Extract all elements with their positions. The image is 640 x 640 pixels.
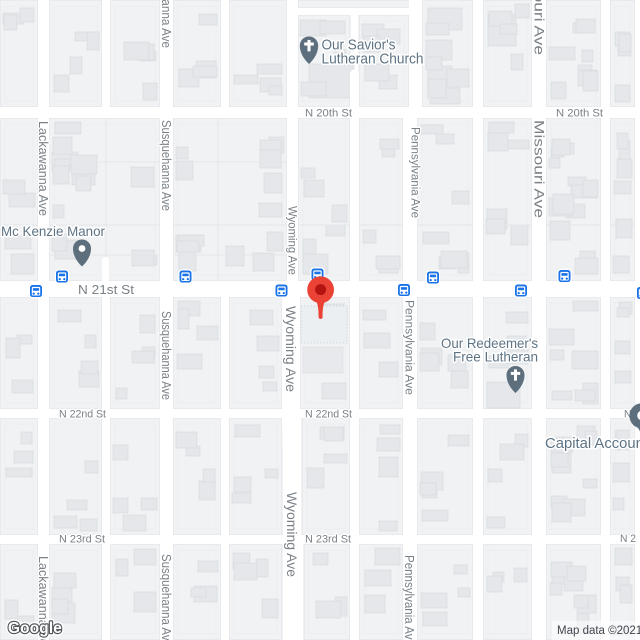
svg-text:N 21st St: N 21st St [78, 282, 134, 297]
svg-text:Missouri Ave: Missouri Ave [531, 120, 546, 218]
svg-text:N 20th St: N 20th St [305, 108, 352, 120]
svg-text:Wyoming Ave: Wyoming Ave [283, 306, 298, 392]
svg-text:Free Lutheran: Free Lutheran [453, 349, 538, 365]
svg-text:Wyoming Ave: Wyoming Ave [285, 206, 299, 275]
svg-text:N 23rd St: N 23rd St [59, 534, 105, 546]
svg-text:Map data ©2021: Map data ©2021 [557, 625, 640, 637]
svg-text:N 23rd St: N 23rd St [305, 534, 351, 546]
svg-text:Missouri Ave: Missouri Ave [531, 0, 546, 55]
svg-text:N 2: N 2 [620, 533, 636, 545]
svg-text:Mc Kenzie Manor: Mc Kenzie Manor [1, 223, 105, 239]
svg-text:N 20th St: N 20th St [556, 108, 603, 120]
svg-text:Pennsylvania Ave: Pennsylvania Ave [408, 127, 420, 218]
svg-text:Susquehanna Ave: Susquehanna Ave [159, 120, 173, 211]
svg-text:Susquehanna Ave: Susquehanna Ave [159, 0, 173, 48]
svg-text:N 22nd St: N 22nd St [59, 409, 106, 421]
svg-text:N 22nd St: N 22nd St [305, 409, 352, 421]
svg-text:Susquehanna Ave: Susquehanna Ave [159, 311, 173, 400]
svg-text:Pennsylvania Ave: Pennsylvania Ave [402, 555, 417, 640]
svg-text:Lutheran Church: Lutheran Church [322, 52, 424, 68]
svg-text:Capital Account: Capital Account [545, 436, 640, 452]
svg-text:Google: Google [8, 620, 62, 637]
svg-text:Lackawanna Ave: Lackawanna Ave [36, 121, 50, 216]
svg-text:Wyoming Ave: Wyoming Ave [284, 492, 299, 577]
svg-text:Pennsylvania Ave: Pennsylvania Ave [402, 300, 414, 395]
svg-text:Susquehanna Ave: Susquehanna Ave [159, 554, 174, 640]
